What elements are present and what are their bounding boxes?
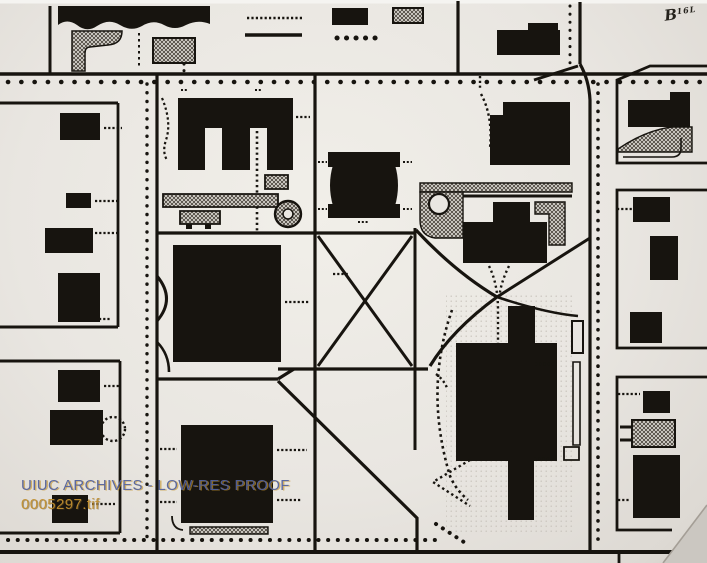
hatch-lot-nw xyxy=(72,31,122,71)
road-diag-s xyxy=(278,381,417,552)
bldg-ne1 xyxy=(628,100,690,127)
pond xyxy=(429,194,449,214)
walk-outline-e1 xyxy=(572,321,583,353)
bldg-w7 xyxy=(52,495,88,523)
bldg-ne1b xyxy=(670,92,690,100)
bldg-e22 xyxy=(650,236,678,280)
bldg-banner-nw xyxy=(58,6,210,29)
pad-leg2 xyxy=(205,224,211,229)
bldg-n-main xyxy=(463,222,547,263)
bldg-w2 xyxy=(66,193,91,208)
loop-band-hatch xyxy=(163,194,278,207)
bldg-cross-s xyxy=(508,461,534,520)
bldg-w5 xyxy=(58,370,100,402)
bldg-e31 xyxy=(643,391,670,413)
hatch-top-1 xyxy=(393,8,423,23)
bldg-comb-e xyxy=(178,98,293,170)
bldg-big-nw xyxy=(173,245,281,362)
walk-outline-e2 xyxy=(573,362,580,445)
drive-arc2 xyxy=(157,342,169,372)
bldg-barrel-bot xyxy=(328,204,400,218)
bldg-cross-main xyxy=(456,343,557,461)
handwritten-label-suffix: 16L xyxy=(676,4,697,16)
bldg-top-2b xyxy=(528,23,558,31)
bldg-barrel-mid xyxy=(330,165,398,206)
dash-path-ne2 xyxy=(481,94,491,148)
campus-map-graphic xyxy=(0,0,707,563)
hatch-pad-e3 xyxy=(632,420,675,447)
map-shapes-layer xyxy=(0,0,707,563)
photo-top-edge xyxy=(0,0,707,4)
dash-e-left-curve xyxy=(162,98,168,160)
tree-band-hatch xyxy=(420,183,572,192)
hatch-pad-e xyxy=(180,211,220,224)
bldg-e32 xyxy=(633,455,680,518)
bldg-e21 xyxy=(633,197,670,222)
bldg-top-1 xyxy=(332,8,368,25)
bldg-w3 xyxy=(45,228,93,253)
bldg-ne-block xyxy=(490,102,570,165)
bldg-barrel-top xyxy=(328,152,400,167)
hatch-lot-nw2 xyxy=(153,38,195,63)
bldg-w1 xyxy=(60,113,100,140)
bldg-w4 xyxy=(58,273,100,322)
road-v-east xyxy=(580,64,590,552)
pad-leg1 xyxy=(186,224,192,229)
bldg-e23 xyxy=(630,312,662,343)
bldg-top-2 xyxy=(497,30,560,55)
steps-hatch-s xyxy=(190,527,268,534)
loop-circle-center xyxy=(283,209,293,219)
bldg-w6 xyxy=(50,410,103,445)
bldg-cross-n xyxy=(508,306,535,343)
bldg-n-annex xyxy=(493,202,530,222)
hatch-pad-e2 xyxy=(265,175,288,189)
archival-map-photo: UIUC ARCHIVES - LOW-RES PROOF 0005297.ti… xyxy=(0,0,707,563)
bldg-big-s xyxy=(181,425,273,523)
